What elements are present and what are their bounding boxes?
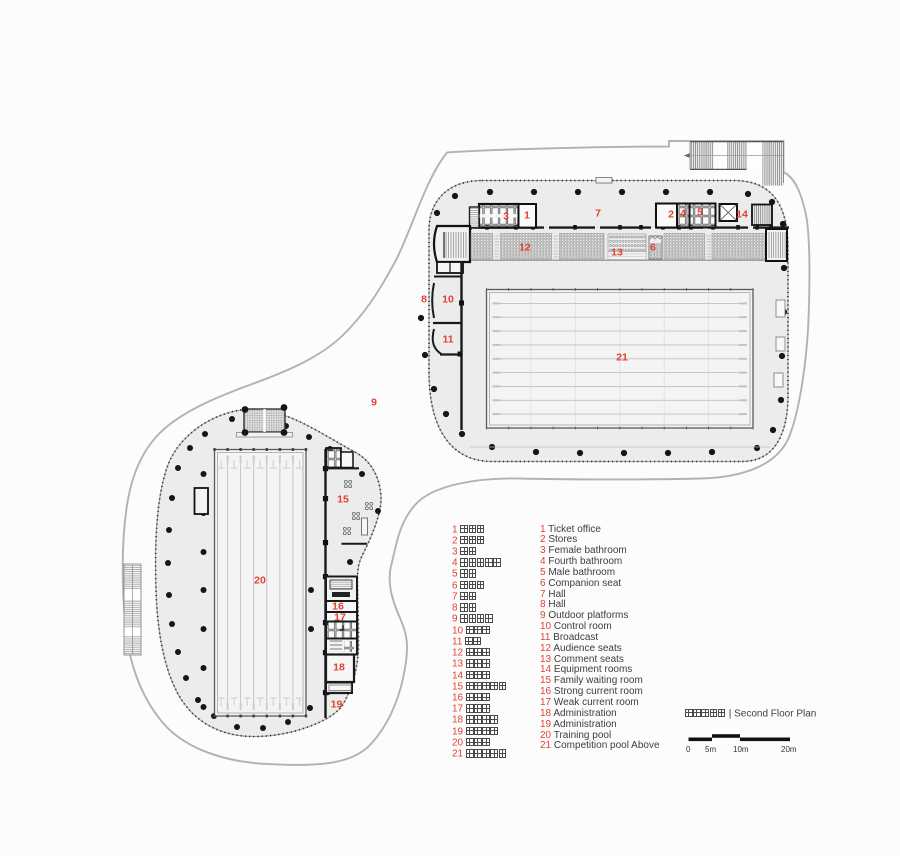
- svg-text:9: 9: [371, 396, 377, 408]
- svg-text:3: 3: [503, 210, 509, 222]
- svg-text:6: 6: [650, 241, 656, 253]
- svg-text:20: 20: [254, 574, 266, 586]
- svg-text:18: 18: [333, 661, 345, 673]
- svg-text:10m: 10m: [733, 745, 749, 754]
- svg-text:12: 12: [519, 241, 531, 253]
- svg-text:0: 0: [686, 745, 691, 754]
- svg-text:1: 1: [524, 209, 530, 221]
- svg-text:8: 8: [421, 293, 427, 305]
- svg-text:5m: 5m: [705, 745, 716, 754]
- svg-text:4: 4: [680, 207, 686, 219]
- svg-text:11: 11: [442, 333, 453, 345]
- svg-text:7: 7: [595, 207, 601, 219]
- svg-text:14: 14: [736, 208, 748, 220]
- svg-text:19: 19: [331, 698, 343, 710]
- svg-text:20m: 20m: [781, 745, 797, 754]
- svg-text:21: 21: [616, 351, 628, 363]
- svg-text:5: 5: [697, 206, 703, 218]
- svg-text:2: 2: [668, 208, 674, 220]
- svg-text:13: 13: [611, 246, 623, 258]
- svg-text:15: 15: [337, 493, 349, 505]
- svg-text:10: 10: [442, 293, 454, 305]
- svg-text:17: 17: [334, 611, 346, 623]
